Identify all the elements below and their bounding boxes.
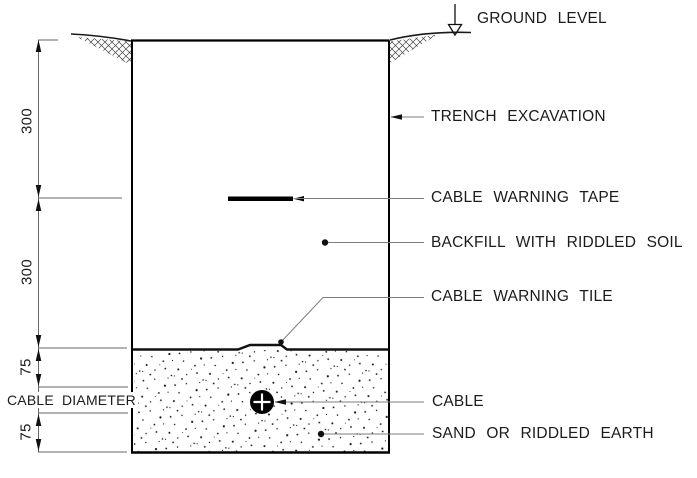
cable-warning-tape-symbol [228, 196, 304, 201]
sand-label: SAND OR RIDDLED EARTH [432, 425, 654, 443]
soil-hatch-left [77, 37, 131, 65]
cable-label: CABLE [432, 393, 484, 411]
dim-75-lower: 75 [18, 423, 35, 440]
dim-300-lower: 300 [19, 259, 36, 285]
trench-cross-section-diagram: GROUND LEVEL TRENCH EXCAVATION CABLE WAR… [0, 0, 697, 478]
backfill-label: BACKFILL WITH RIDDLED SOIL [431, 234, 683, 252]
dim-cable-diameter: CABLE DIAMETER [5, 392, 138, 408]
dim-75-upper: 75 [18, 358, 35, 375]
dimension-lines [38, 40, 128, 452]
cable-symbol [250, 390, 274, 414]
cable-warning-tape-label: CABLE WARNING TAPE [431, 189, 619, 207]
ground-level-label: GROUND LEVEL [477, 10, 607, 28]
trench-excavation-label: TRENCH EXCAVATION [431, 108, 606, 126]
cable-warning-tile-label: CABLE WARNING TILE [431, 288, 613, 306]
warning-tile-profile [133, 345, 389, 350]
ground-level-datum-icon [449, 4, 462, 35]
dim-300-upper: 300 [19, 108, 36, 134]
